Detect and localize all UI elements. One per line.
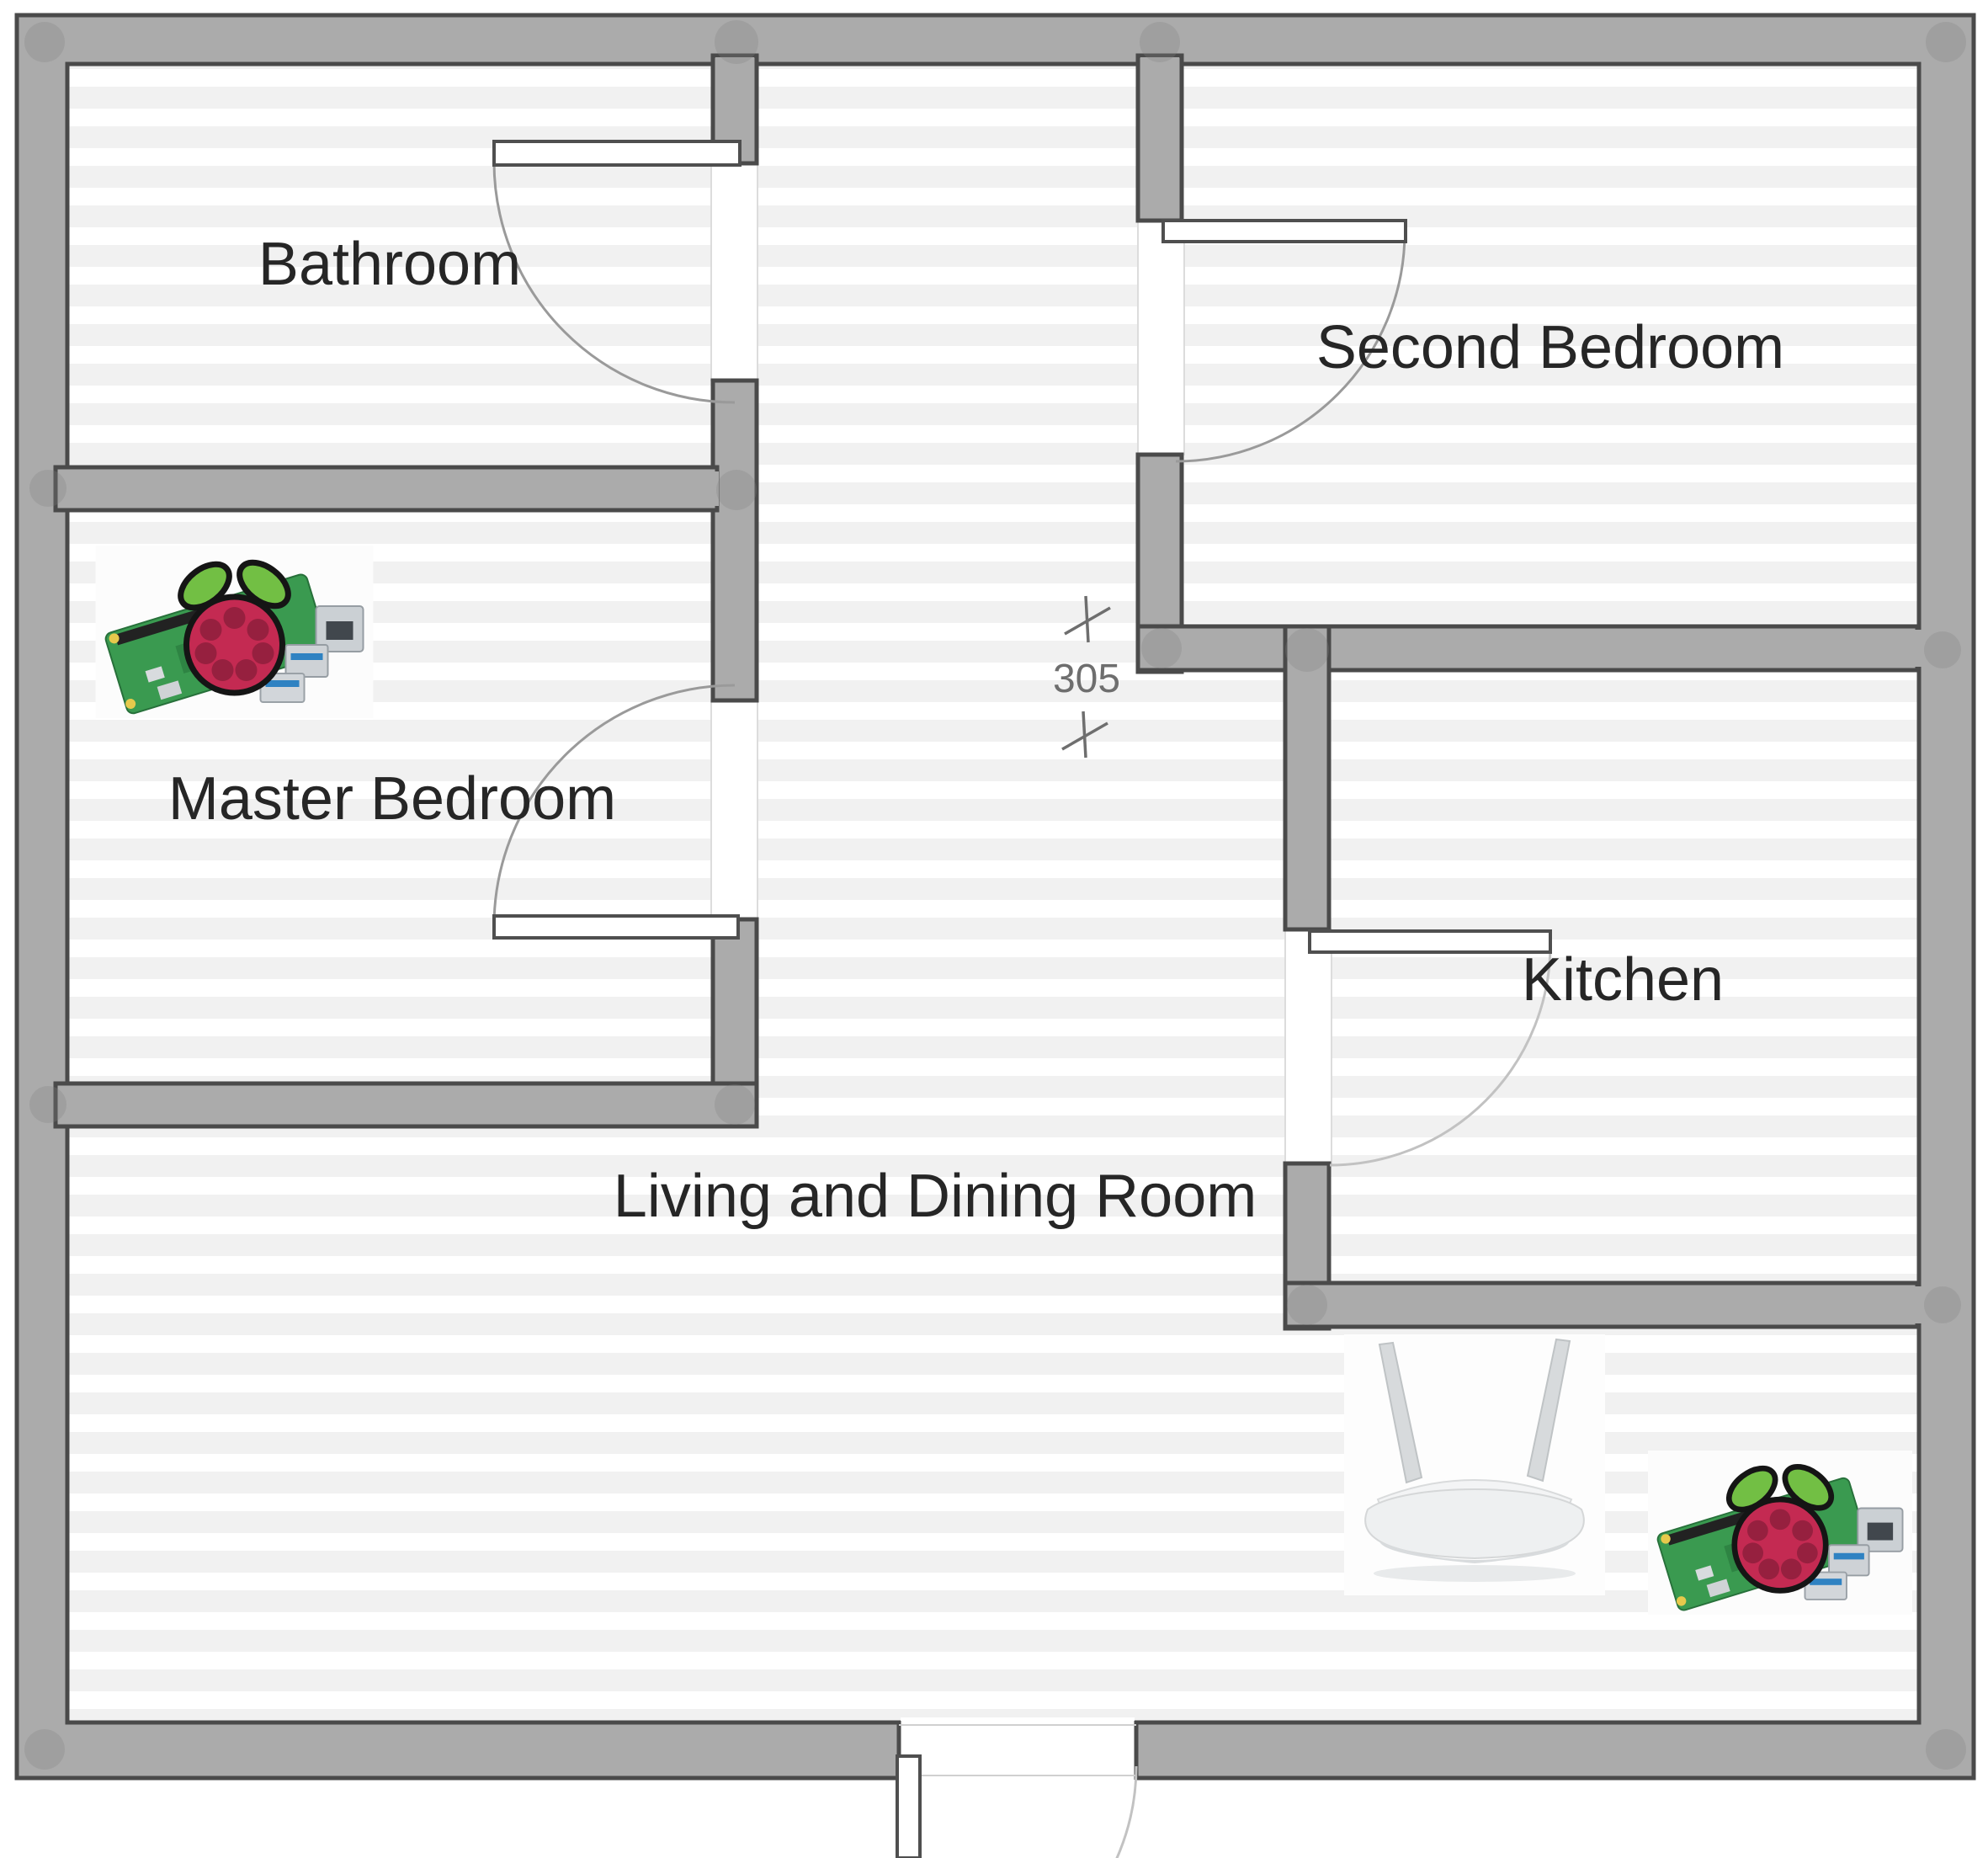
wall-kitchen-bottom <box>1285 1283 1917 1327</box>
door-leaf <box>494 141 740 165</box>
room-label-living-dining: Living and Dining Room <box>614 1163 1257 1230</box>
floor-area <box>67 64 1919 1722</box>
wifi-router-icon <box>1344 1334 1605 1595</box>
room-label-bathroom: Bathroom <box>258 231 521 298</box>
wall-master-bottom <box>56 1083 757 1126</box>
room-label-second-bedroom: Second Bedroom <box>1316 314 1784 381</box>
room-label-kitchen: Kitchen <box>1522 946 1724 1014</box>
door-leaf <box>1310 931 1550 952</box>
wall-hall-middle <box>713 381 757 700</box>
wall-second-bedroom-left-top <box>1138 56 1182 221</box>
door-leaf <box>897 1756 920 1858</box>
floor-plan-svg: 305 Bathroom Second Bedroom Master Bedro… <box>0 0 1988 1858</box>
wall-bathroom-bottom <box>56 467 717 510</box>
entry-opening <box>899 1717 1136 1783</box>
wall-second-bedroom-bottom <box>1138 626 1917 670</box>
raspberry-pi-icon <box>1648 1451 1912 1615</box>
door-leaf <box>1163 221 1406 242</box>
door-leaf <box>494 916 738 938</box>
raspberry-pi-icon <box>96 546 374 718</box>
dimension-value: 305 <box>1053 657 1120 701</box>
room-label-master-bedroom: Master Bedroom <box>168 765 616 833</box>
